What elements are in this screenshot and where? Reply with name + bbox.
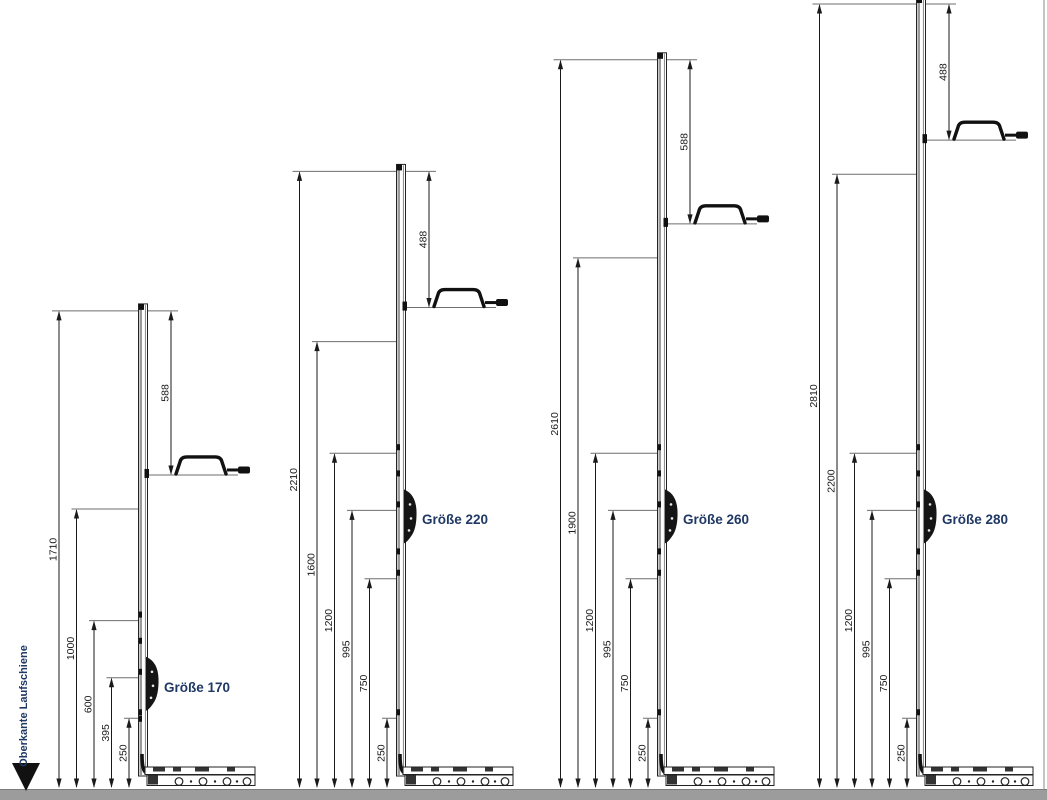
dimension-value: 750 <box>619 674 631 692</box>
rail-dash-mark <box>917 548 920 554</box>
dimension-value: 750 <box>878 674 890 692</box>
arrowhead-icon <box>558 779 563 789</box>
handle-mount <box>145 469 150 478</box>
gearbox-detail <box>930 517 933 520</box>
dimension-value: 1200 <box>843 609 855 633</box>
dimension-value: 250 <box>376 744 388 762</box>
ground-strip <box>0 789 1047 800</box>
arrowhead-icon <box>887 579 892 589</box>
rail-shading <box>398 165 401 775</box>
gearbox-detail <box>151 670 154 673</box>
dimension-value: 588 <box>679 133 691 151</box>
arrowhead-icon <box>332 453 337 463</box>
handle-rod-cap <box>238 466 250 473</box>
gearbox-detail <box>671 517 674 520</box>
roller-dot <box>755 780 757 782</box>
carriage-fitting <box>153 768 165 772</box>
rail-shading <box>140 305 143 775</box>
dimension-value: 2200 <box>826 469 838 493</box>
arrowhead-icon <box>91 779 96 789</box>
rail-top-cap <box>139 304 144 310</box>
rail-dash-mark <box>397 444 400 450</box>
handle-mount <box>664 218 669 227</box>
handle-bow <box>176 457 226 474</box>
gearbox-detail <box>669 529 672 532</box>
rail-dash-mark <box>139 709 142 715</box>
arrowhead-icon <box>904 779 909 789</box>
roller-dot <box>448 780 450 782</box>
dimension-value: 2810 <box>808 384 820 408</box>
carriage-fitting <box>1005 768 1013 772</box>
gearbox-lock <box>146 657 159 711</box>
arrowhead-icon <box>610 510 615 520</box>
rail-dash-mark <box>658 548 661 554</box>
rail-top-cap <box>397 164 402 170</box>
arrowhead-icon <box>168 311 173 321</box>
technical-drawing-canvas: 5881710100060039525048822101600120099575… <box>0 0 1047 800</box>
handle-bow <box>434 290 484 307</box>
dimension-value: 995 <box>602 640 614 658</box>
arrowhead-icon <box>558 60 563 69</box>
gearbox-lock <box>924 489 937 543</box>
dimension-value: 1200 <box>584 609 596 633</box>
arrowhead-icon <box>126 718 131 728</box>
roller-wheel <box>223 778 231 786</box>
arrowhead-icon <box>817 779 822 789</box>
dimension-value: 2210 <box>288 468 300 492</box>
rail-dash-mark <box>397 570 400 576</box>
dimension-value: 1710 <box>48 538 60 562</box>
rail-dash-mark <box>917 470 920 476</box>
arrowhead-icon <box>834 779 839 789</box>
rail-dash-mark <box>397 501 400 507</box>
rail-dash-mark <box>397 470 400 476</box>
carriage-fitting <box>692 768 700 772</box>
arrowhead-icon <box>869 779 874 789</box>
arrowhead-icon <box>687 214 692 224</box>
arrowhead-icon <box>332 779 337 789</box>
arrowhead-icon <box>56 779 61 789</box>
roller-wheel <box>1021 778 1029 786</box>
arrowhead-icon <box>852 453 857 463</box>
arrowhead-icon <box>168 465 173 475</box>
dimension-value: 250 <box>118 744 130 762</box>
roller-wheel <box>742 778 750 786</box>
size-label-220: Größe 220 <box>422 511 488 529</box>
arrowhead-icon <box>628 779 633 789</box>
gearbox-lock <box>665 489 678 543</box>
roller-dot <box>709 780 711 782</box>
roller-dot <box>494 780 496 782</box>
roller-dot <box>472 780 474 782</box>
carriage-block <box>148 776 158 785</box>
arrowhead-icon <box>367 579 372 589</box>
arrowhead-icon <box>297 779 302 789</box>
arrowhead-icon <box>126 779 131 789</box>
carriage-fitting <box>714 768 728 772</box>
handle-rod-cap <box>757 215 769 222</box>
rail-dash-mark <box>397 548 400 554</box>
arrowhead-icon <box>834 174 839 184</box>
roller-wheel <box>457 778 465 786</box>
gearbox-lock <box>404 489 417 543</box>
arrowhead-icon <box>56 311 61 321</box>
handle-mount <box>403 302 408 311</box>
arrowhead-icon <box>593 453 598 463</box>
arrowhead-icon <box>109 678 114 688</box>
arrowhead-icon <box>314 779 319 789</box>
roller-wheel <box>199 778 207 786</box>
rail-dash-mark <box>917 570 920 576</box>
rail-shading <box>918 0 921 775</box>
rail-dash-mark <box>917 709 920 715</box>
rail-dash-mark <box>658 444 661 450</box>
dimension-value: 250 <box>896 744 908 762</box>
dimension-value: 1000 <box>65 637 77 661</box>
arrowhead-icon <box>869 510 874 520</box>
rail-dash-mark <box>917 501 920 507</box>
gearbox-detail <box>150 696 153 699</box>
roller-wheel <box>175 778 183 786</box>
dimension-value: 600 <box>83 695 95 713</box>
dimension-value: 1900 <box>567 511 579 535</box>
roller-wheel <box>977 778 985 786</box>
rail-dash-mark <box>658 501 661 507</box>
roller-dot <box>992 780 994 782</box>
roller-wheel <box>718 778 726 786</box>
dimension-value: 1200 <box>323 609 335 633</box>
rail-dash-mark <box>139 716 142 722</box>
carriage-fitting <box>453 768 467 772</box>
dimension-value: 488 <box>938 63 950 81</box>
handle-rod-cap <box>1016 132 1028 139</box>
arrowhead-icon <box>575 779 580 789</box>
handle-mount <box>923 134 928 143</box>
arrowhead-icon <box>349 510 354 520</box>
arrowhead-icon <box>314 342 319 352</box>
arrowhead-icon <box>904 718 909 728</box>
gearbox-detail <box>928 529 931 532</box>
arrowhead-icon <box>887 779 892 789</box>
rail-dash-mark <box>917 444 920 450</box>
rail-dash-mark <box>658 709 661 715</box>
carriage-fitting <box>227 768 235 772</box>
arrowhead-icon <box>74 779 79 789</box>
dimension-value: 1600 <box>306 553 318 577</box>
carriage-block <box>667 776 677 785</box>
dimension-value: 488 <box>418 231 430 249</box>
rail-dash-mark <box>139 669 142 675</box>
arrowhead-icon <box>349 779 354 789</box>
roller-wheel <box>501 778 509 786</box>
baseline-label: Oberkante Laufschiene <box>18 631 34 781</box>
gearbox-detail <box>409 503 412 506</box>
roller-dot <box>236 780 238 782</box>
handle-bow <box>695 206 745 223</box>
gearbox-detail <box>929 503 932 506</box>
carriage-fitting <box>672 768 684 772</box>
carriage-fitting <box>431 768 439 772</box>
rail-dash-mark <box>139 638 142 644</box>
roller-wheel <box>433 778 441 786</box>
carriage-fitting <box>485 768 493 772</box>
dimension-value: 995 <box>341 640 353 658</box>
rail-dash-mark <box>397 709 400 715</box>
arrowhead-icon <box>575 258 580 268</box>
dimension-value: 395 <box>100 724 112 742</box>
arrowhead-icon <box>852 779 857 789</box>
arrowhead-icon <box>687 60 692 69</box>
carriage-block <box>406 776 416 785</box>
arrowhead-icon <box>426 171 431 181</box>
handle-rod-cap <box>496 299 508 306</box>
arrowhead-icon <box>91 621 96 631</box>
rail-dash-mark <box>139 612 142 618</box>
handle-bow <box>954 122 1004 139</box>
carriage-fitting <box>173 768 181 772</box>
roller-dot <box>1014 780 1016 782</box>
roller-dot <box>214 780 216 782</box>
roller-wheel <box>953 778 961 786</box>
rail-shading <box>659 54 662 775</box>
roller-wheel <box>1001 778 1009 786</box>
roller-wheel <box>762 778 770 786</box>
roller-wheel <box>481 778 489 786</box>
carriage-fitting <box>411 768 423 772</box>
gearbox-detail <box>408 529 411 532</box>
arrowhead-icon <box>645 718 650 728</box>
size-label-170: Größe 170 <box>164 679 230 697</box>
gearbox-detail <box>152 684 155 687</box>
dimension-value: 250 <box>637 744 649 762</box>
dimension-value: 750 <box>358 674 370 692</box>
rail-top-cap <box>917 0 922 3</box>
arrowhead-icon <box>74 509 79 519</box>
gearbox-detail <box>670 503 673 506</box>
roller-dot <box>190 780 192 782</box>
arrowhead-icon <box>109 779 114 789</box>
dimension-value: 588 <box>160 384 172 402</box>
arrowhead-icon <box>817 4 822 14</box>
arrowhead-icon <box>426 298 431 308</box>
roller-dot <box>733 780 735 782</box>
arrowhead-icon <box>384 718 389 728</box>
gearbox-detail <box>410 517 413 520</box>
rail-top-cap <box>658 53 663 59</box>
roller-wheel <box>243 778 251 786</box>
arrowhead-icon <box>297 171 302 181</box>
roller-wheel <box>694 778 702 786</box>
arrowhead-icon <box>628 579 633 589</box>
rail-dash-mark <box>658 570 661 576</box>
dimension-value: 995 <box>861 640 873 658</box>
arrowhead-icon <box>946 131 951 141</box>
rail-dash-mark <box>658 470 661 476</box>
carriage-block <box>926 776 936 785</box>
arrowhead-icon <box>645 779 650 789</box>
carriage-fitting <box>973 768 987 772</box>
carriage-fitting <box>746 768 754 772</box>
arrowhead-icon <box>367 779 372 789</box>
dimension-value: 2610 <box>549 412 561 436</box>
size-label-260: Größe 260 <box>683 511 749 529</box>
arrowhead-icon <box>384 779 389 789</box>
size-label-280: Größe 280 <box>942 511 1008 529</box>
arrowhead-icon <box>593 779 598 789</box>
dimension-diagram: 5881710100060039525048822101600120099575… <box>0 0 1047 800</box>
carriage-fitting <box>951 768 959 772</box>
arrowhead-icon <box>946 4 951 14</box>
roller-dot <box>968 780 970 782</box>
arrowhead-icon <box>610 779 615 789</box>
carriage-fitting <box>931 768 943 772</box>
carriage-fitting <box>195 768 209 772</box>
